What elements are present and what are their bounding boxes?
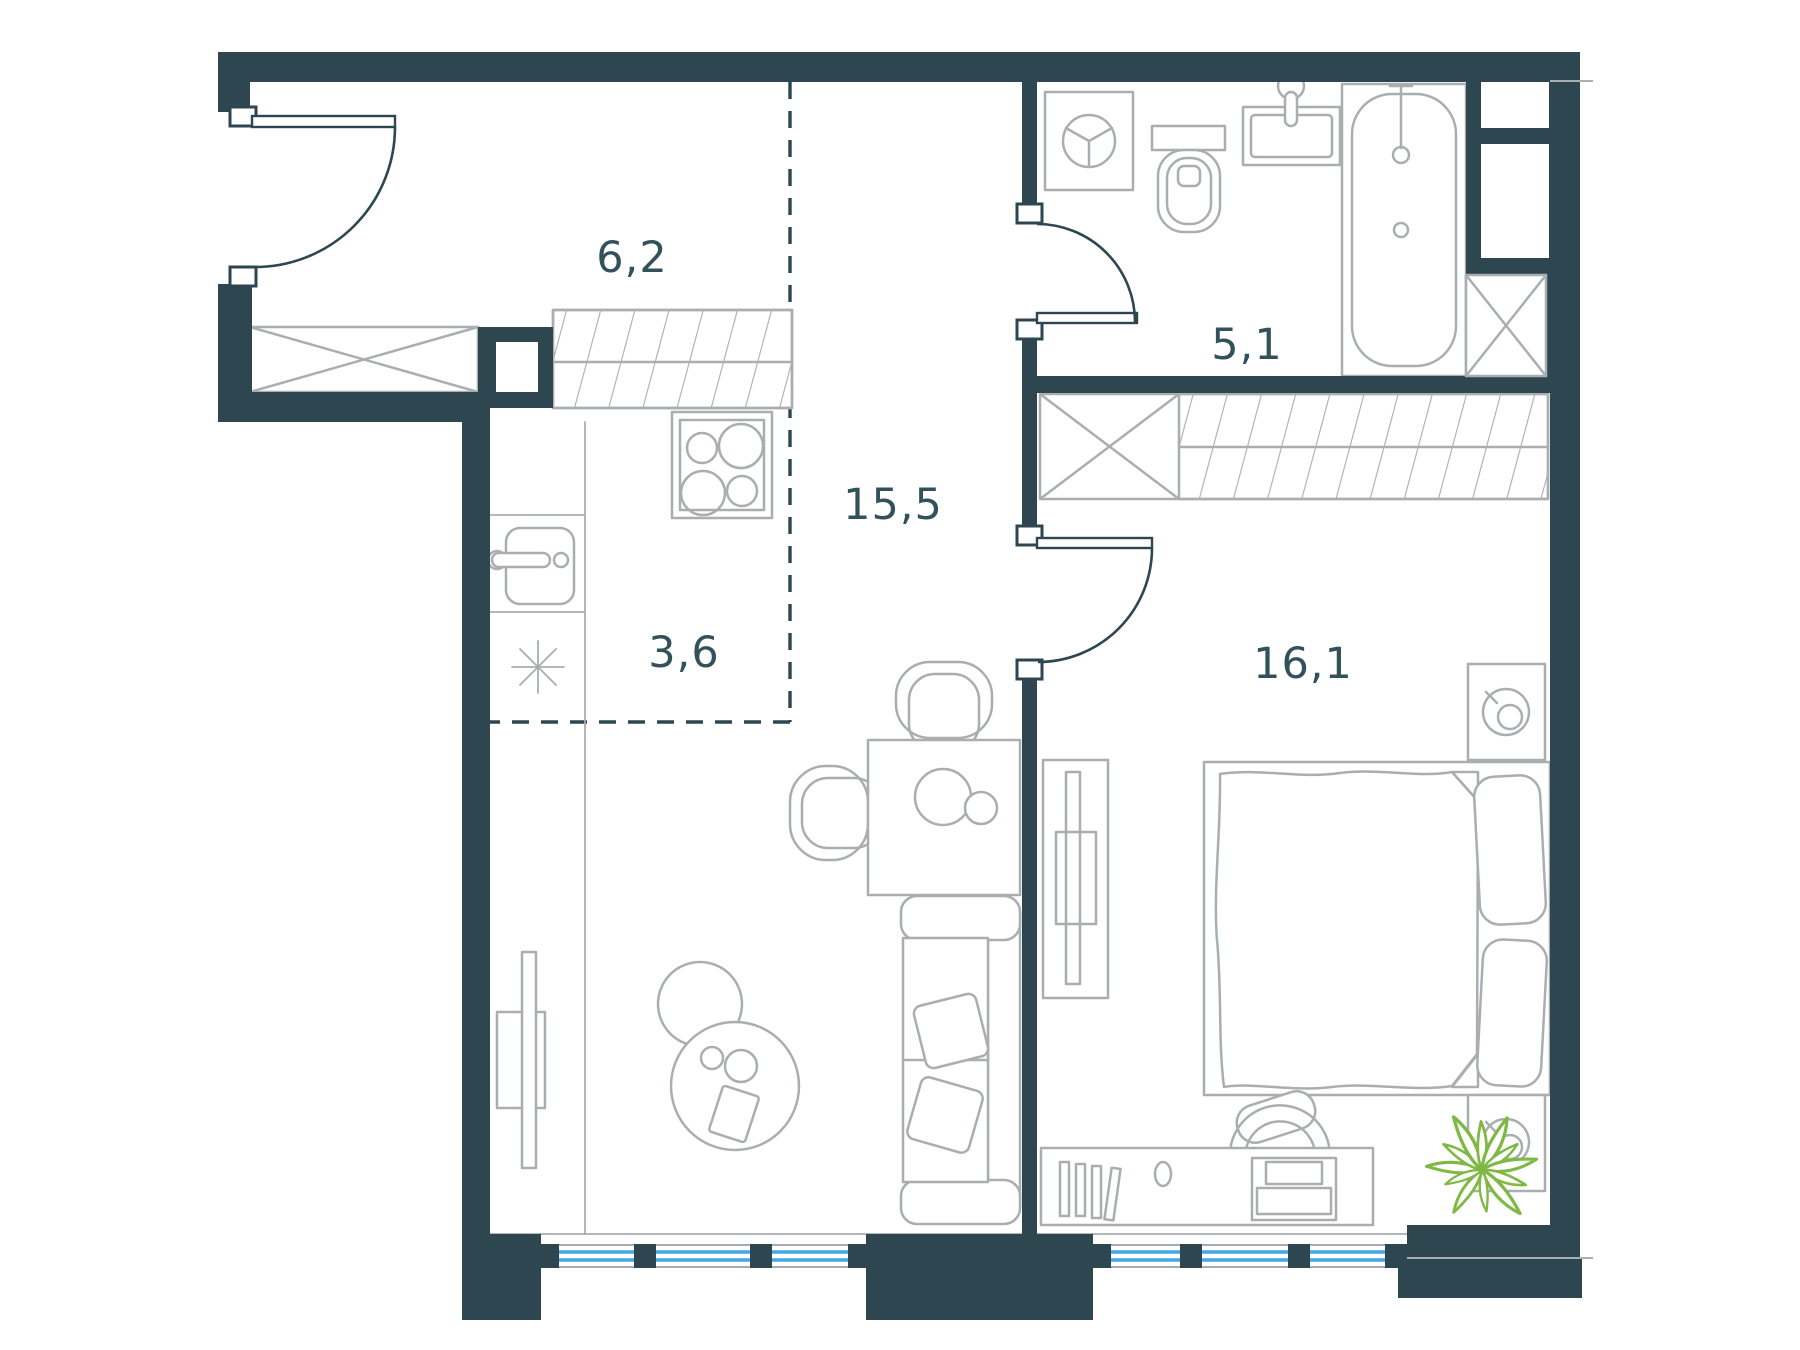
toilet bbox=[1152, 126, 1225, 232]
bathroom-door bbox=[1017, 204, 1137, 339]
label-hallway: 6,2 bbox=[596, 233, 667, 283]
window-living bbox=[541, 1244, 866, 1268]
armchair-round bbox=[671, 1022, 799, 1150]
wall-partition-2 bbox=[1022, 337, 1037, 528]
tv-console-living bbox=[497, 952, 545, 1168]
washing-machine bbox=[1045, 92, 1133, 190]
bedroom-door bbox=[1017, 526, 1152, 679]
bedroom-furniture bbox=[1040, 394, 1550, 1225]
wall-kitchen-left bbox=[462, 422, 490, 1234]
living-room bbox=[497, 662, 1020, 1224]
label-bedroom: 16,1 bbox=[1253, 639, 1353, 689]
desk bbox=[1041, 1148, 1373, 1225]
bathtub bbox=[1342, 84, 1466, 376]
corner-block-lower bbox=[1398, 1258, 1582, 1298]
wall-partition-3 bbox=[1022, 678, 1037, 1234]
dining-chair-top bbox=[896, 662, 992, 750]
sofa bbox=[901, 896, 1020, 1224]
niche-1 bbox=[1481, 82, 1549, 128]
label-kitchen: 3,6 bbox=[648, 628, 719, 678]
wall-left-upper bbox=[218, 284, 252, 392]
entry-door bbox=[230, 107, 395, 286]
wall-top bbox=[218, 52, 1580, 82]
wall-shaft-band bbox=[490, 392, 553, 408]
wall-partition-1 bbox=[1022, 82, 1037, 207]
label-living: 15,5 bbox=[843, 480, 943, 530]
vent-duct bbox=[1466, 275, 1546, 376]
bed bbox=[1204, 762, 1550, 1095]
tv-console-bedroom bbox=[1043, 760, 1108, 998]
niche-2 bbox=[1481, 144, 1549, 258]
shaft-niche bbox=[496, 342, 538, 392]
pier-left bbox=[462, 1234, 541, 1320]
wall-hall-bottom bbox=[218, 392, 490, 422]
window-bedroom bbox=[1093, 1244, 1407, 1268]
bedroom-wardrobe bbox=[1040, 394, 1548, 499]
kitchen-upper-cabinet bbox=[553, 310, 792, 408]
bathroom-sink bbox=[1243, 73, 1340, 165]
stove bbox=[672, 412, 772, 518]
dining-chair-left bbox=[790, 766, 880, 860]
fridge-symbol bbox=[512, 641, 564, 693]
hallway-wardrobe bbox=[250, 327, 478, 392]
corner-block-upper bbox=[1407, 1225, 1550, 1258]
dining-table bbox=[868, 740, 1020, 895]
pier-middle bbox=[866, 1234, 1093, 1320]
kitchen-sink bbox=[488, 528, 574, 604]
nightstand-top bbox=[1468, 664, 1545, 760]
wall-right bbox=[1550, 52, 1580, 1258]
wall-bathroom-bottom bbox=[1022, 376, 1580, 393]
floor-plan: 6,2 5,1 15,5 3,6 16,1 bbox=[0, 0, 1800, 1350]
label-bathroom: 5,1 bbox=[1211, 320, 1282, 370]
floor-plan-page: 6,2 5,1 15,5 3,6 16,1 bbox=[0, 0, 1800, 1350]
